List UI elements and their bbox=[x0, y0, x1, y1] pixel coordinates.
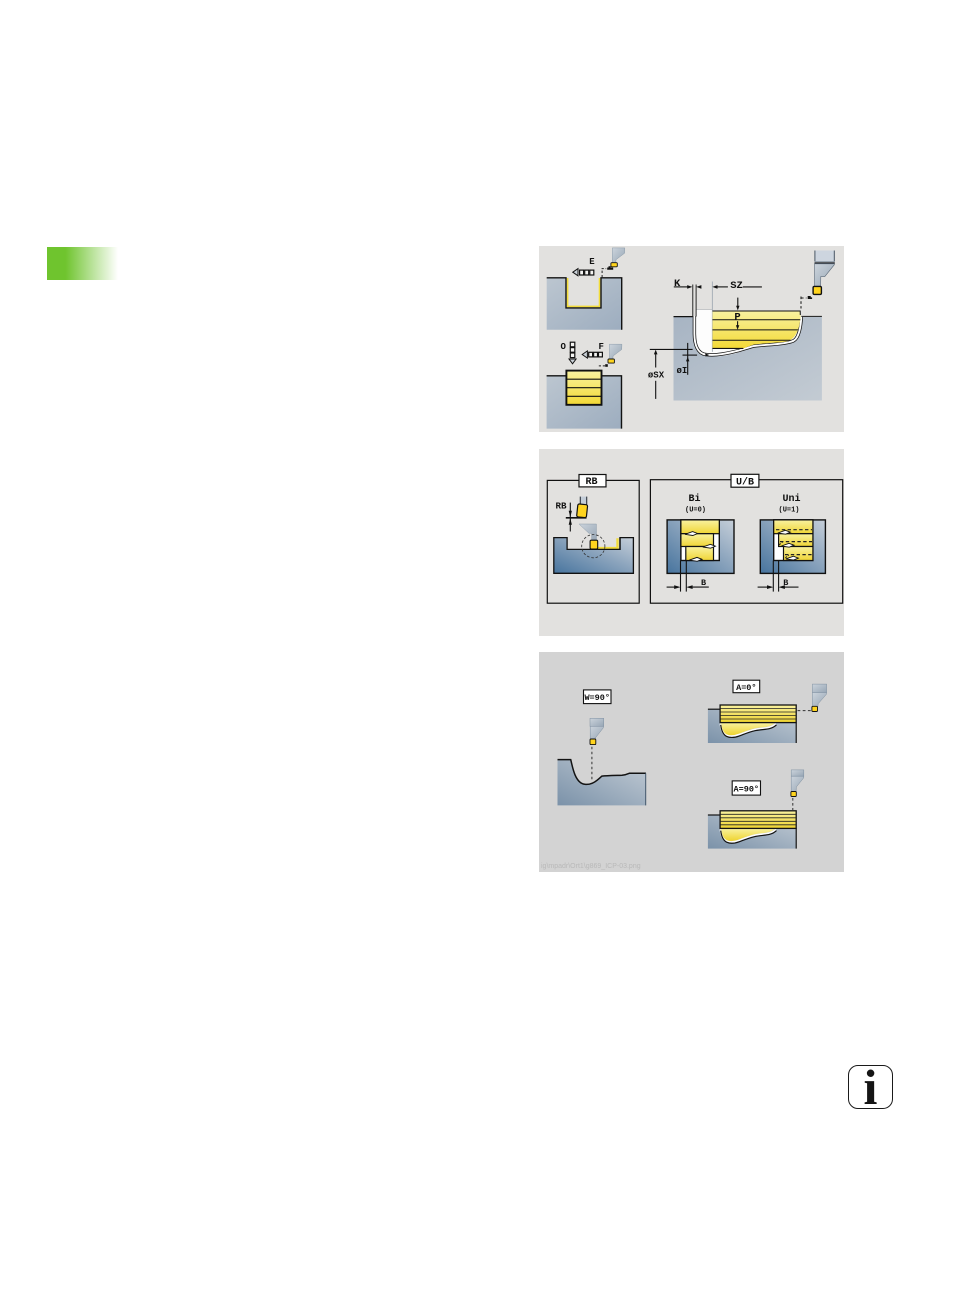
svg-text:Bi: Bi bbox=[689, 493, 701, 505]
svg-text:O: O bbox=[561, 342, 567, 352]
svg-text:(U=0): (U=0) bbox=[685, 507, 706, 515]
svg-text:SZ: SZ bbox=[730, 280, 743, 292]
svg-text:A=0°: A=0° bbox=[736, 683, 756, 693]
svg-text:RB: RB bbox=[556, 500, 568, 511]
svg-text:ig\mpadr\Ort1\g869_ICP-03.png: ig\mpadr\Ort1\g869_ICP-03.png bbox=[541, 863, 641, 870]
svg-text:K: K bbox=[674, 278, 681, 290]
svg-text:B: B bbox=[701, 578, 706, 588]
svg-text:B: B bbox=[783, 578, 788, 588]
svg-text:Uni: Uni bbox=[783, 493, 801, 505]
svg-text:RB: RB bbox=[586, 477, 598, 488]
svg-text:øI: øI bbox=[677, 366, 688, 376]
svg-text:(U=1): (U=1) bbox=[779, 507, 800, 515]
svg-text:A=90°: A=90° bbox=[734, 785, 760, 795]
svg-text:F: F bbox=[599, 342, 604, 352]
svg-text:øSX: øSX bbox=[648, 371, 665, 381]
svg-text:U/B: U/B bbox=[736, 476, 754, 488]
svg-text:E: E bbox=[589, 257, 595, 267]
svg-text:W=90°: W=90° bbox=[584, 693, 610, 703]
